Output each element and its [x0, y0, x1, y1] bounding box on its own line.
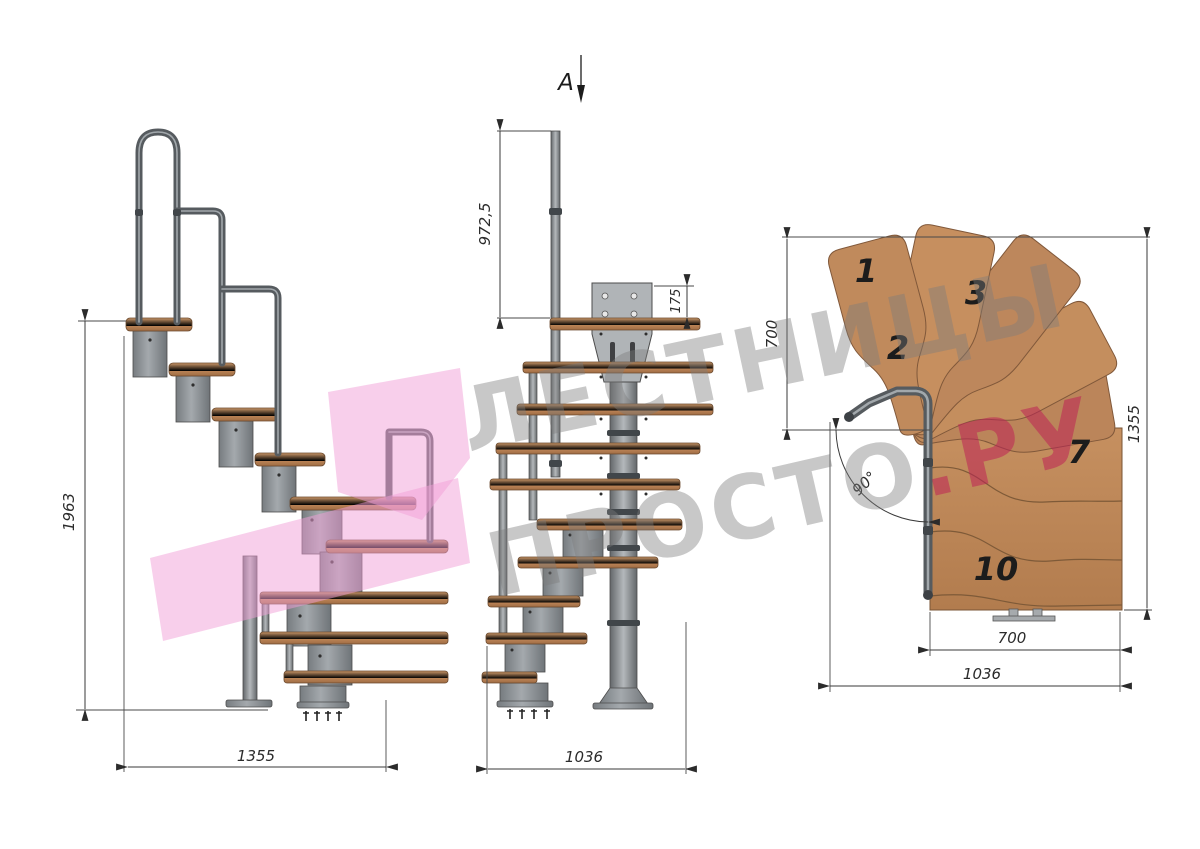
front-width-dim: 1036	[565, 748, 603, 766]
column-base-flare	[599, 688, 648, 704]
wall-bracket	[993, 609, 1055, 621]
section-arrow: А	[556, 55, 585, 103]
plate-dim: 175	[669, 289, 684, 314]
depth-dim: 1355	[1125, 405, 1143, 443]
side-height-dim: 1963	[60, 493, 78, 531]
staircase-drawing-page: 1 2 3 7 10 1963 1355 А 972,5 175	[0, 0, 1200, 849]
rail-height-dim: 972,5	[476, 203, 494, 246]
side-width-dim: 1355	[237, 747, 275, 765]
support-base-plate	[226, 700, 272, 707]
overall-width-dim: 1036	[963, 665, 1001, 683]
technical-drawing-canvas: 1 2 3 7 10 1963 1355 А 972,5 175	[0, 0, 1200, 849]
anchor-bolts	[507, 709, 550, 719]
anchor-bolts	[303, 711, 342, 721]
column-base-plate	[593, 703, 653, 709]
tread-width-dim: 700	[998, 629, 1027, 647]
section-label: А	[556, 70, 574, 96]
tread-number-10: 10	[974, 550, 1019, 588]
post-joint	[549, 208, 562, 215]
post-joint	[549, 460, 562, 467]
